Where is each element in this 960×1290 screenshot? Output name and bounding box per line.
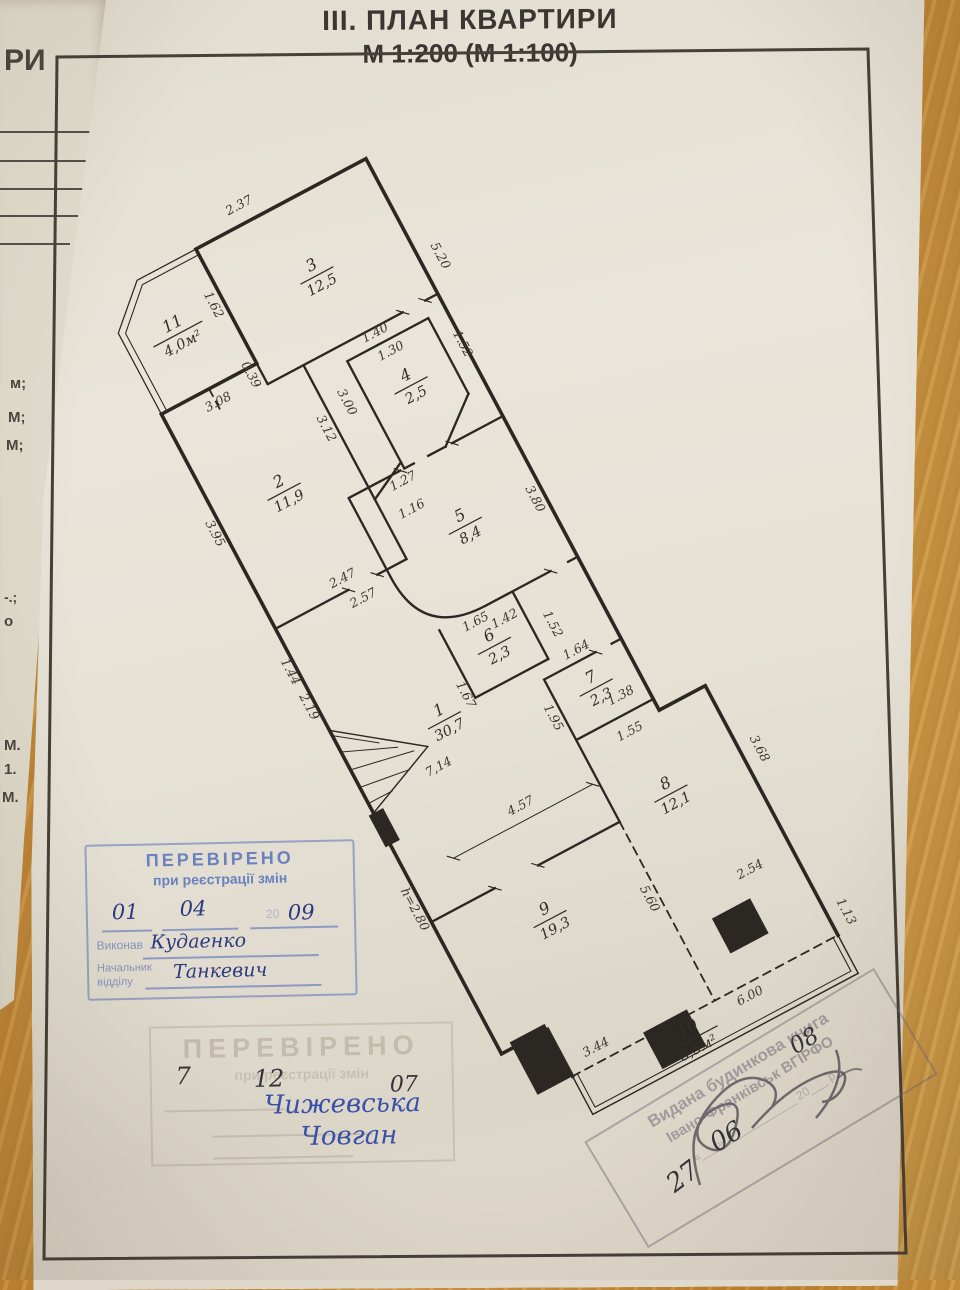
dimension-label: 1.55 [614,718,646,744]
chief-handwriting: Танкевич [173,961,268,982]
room-area: 12,5 [304,271,340,300]
room-number: 1 [430,699,448,721]
room-number: 4 [396,364,415,386]
faded-day: 7 [175,1064,191,1088]
room-label: 58,4 [439,499,490,552]
wall-block [643,1009,706,1069]
stamp-year: 09 [288,902,315,924]
dimension-label: 1.44 [278,656,304,688]
executor-label: Виконав [96,938,143,953]
dimension-label: 5.60 [637,882,663,914]
faded-verified-stamp: ПЕРЕВІРЕНО при реєстрації змін 7 12 07 Ч… [149,1021,455,1166]
room-number: 3 [302,254,320,276]
dimension-label: 0.39 [238,359,264,391]
dimension-label: h=2.80 [398,885,433,933]
room-number: 5 [451,505,469,527]
faded-stamp-title: ПЕРЕВІРЕНО [151,1029,451,1065]
room-area: 8,4 [457,523,485,548]
dimension-label: 1.67 [453,679,479,711]
room-area: 11,9 [272,487,308,516]
verified-stamp: ПЕРЕВІРЕНО при реєстрації змін 01 04 20 … [84,839,357,1001]
dimension-ticks [210,294,690,904]
dimension-label: 5.20 [428,240,454,272]
dimension-label: 1.27 [387,467,419,493]
stamp-month: 04 [180,898,207,920]
room-label: 312,5 [291,248,342,301]
stamp-year-prefix: 20 [266,907,280,921]
room-number: 11 [159,310,186,336]
wall-block [369,808,400,847]
dimension-label: 1.30 [375,337,407,363]
chief-label-1: Начальник [97,961,152,974]
dimension-label: 3.44 [580,1034,612,1060]
owner-name-2: Човган [301,1122,398,1150]
room-area: 12,1 [658,789,694,818]
chief-label-2: відділу [97,976,133,989]
dimension-label: 1.64 [560,636,592,662]
room-label: 114,0м² [144,303,211,364]
dimension-label: 2.54 [733,856,766,883]
dimension-label: 2.47 [325,565,358,592]
dimension-label: 3.68 [747,732,773,764]
room-number: 9 [536,898,554,920]
dimension-label: 1.13 [833,895,859,927]
wall-block [712,898,769,953]
dimension-label: 1.42 [488,605,520,631]
dimension-label: 3.95 [202,517,228,549]
dimension-label: 1.62 [201,289,227,321]
dimension-label: 4.57 [503,792,536,819]
room-area: 2,5 [402,383,431,408]
room-area: 2,3 [485,643,514,668]
dimension-label: 3.00 [334,386,360,418]
hatch-triangle [330,693,444,813]
room-label: 211,9 [258,464,309,517]
owner-name-1: Чижевська [264,1090,421,1119]
dimension-label: 3.80 [522,483,548,515]
dimension-label: 3.08 [202,388,234,414]
balcony-wall-inner [109,255,257,412]
dimension-label: 1.52 [450,328,476,360]
dimension-label: 1.38 [605,682,637,708]
dimension-label: 1.95 [541,701,567,733]
room-label: 919,3 [524,892,575,945]
stamp-day: 01 [112,902,139,924]
room-label: 42,5 [385,358,436,411]
balcony-wall [101,249,257,414]
dimension-label: 2.57 [346,584,379,611]
dimension-label: 1.16 [395,495,427,521]
dimension-label: 2.37 [222,192,255,219]
wall-block [510,1024,573,1095]
dimension-label: 6.00 [734,982,766,1008]
room-number: 7 [582,666,601,688]
executor-handwriting: Кудаенко [150,931,246,952]
room-label: 812,1 [645,766,696,819]
dimension-label: 1.52 [540,608,566,640]
room-number: 2 [269,470,288,492]
dimension-label: 2.19 [296,690,323,723]
dimension-label: 7,14 [422,753,454,779]
dimension-label: 3.12 [314,412,340,444]
faded-month: 12 [254,1066,285,1091]
room-number: 8 [656,772,674,794]
hatch-lines [335,706,426,802]
room-area: 19,3 [537,914,573,943]
